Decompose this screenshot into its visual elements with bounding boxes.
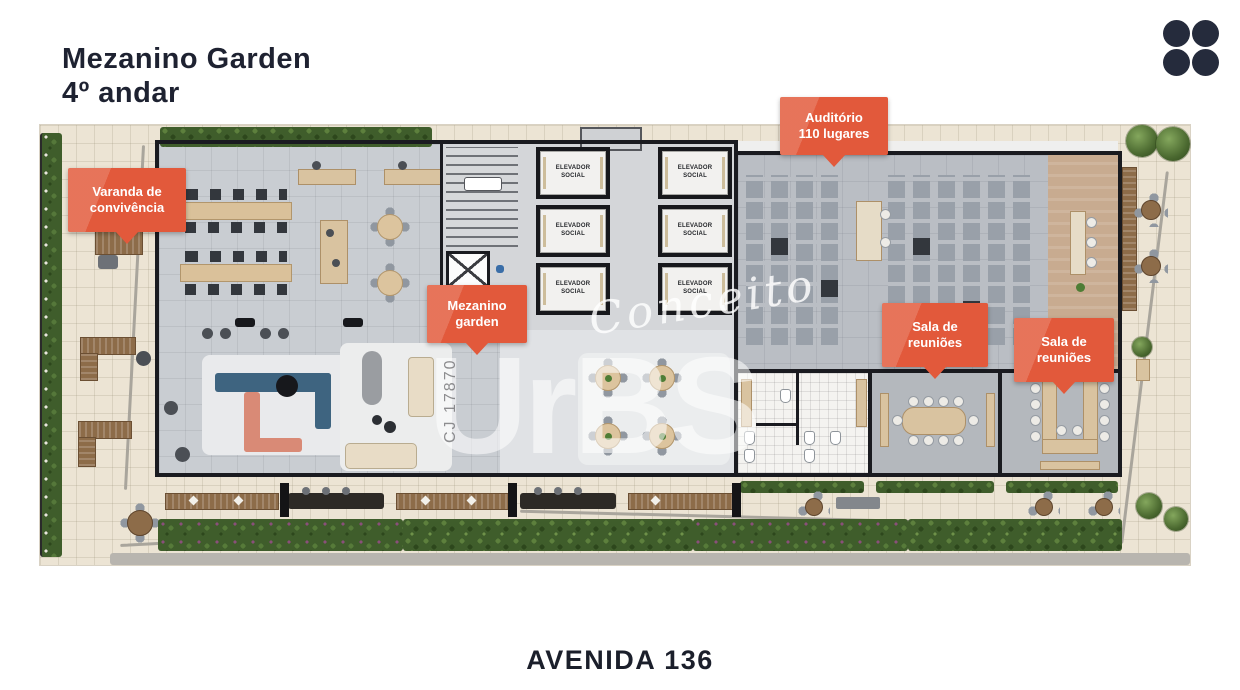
deck-seat [342,487,350,495]
terrace-round-table [1134,249,1168,283]
wall [1118,151,1122,477]
meeting-chair [953,396,964,407]
dark-deck [520,493,616,509]
callout-text: Sala de [1020,334,1108,350]
elevator: ELEVADORSOCIAL [658,205,732,257]
toilet [804,431,815,445]
cafe-chair [220,328,231,339]
workstation-bench [180,189,292,233]
control-chair [880,209,891,220]
callout-mezanino: Mezanino garden [427,285,527,343]
street-label: AVENIDA 136 [0,645,1240,676]
tree [1136,493,1162,519]
meeting-chair [953,435,964,446]
auditorium-seats-left [746,175,838,345]
side-table [384,421,396,433]
tree [1164,507,1188,531]
toilet [830,431,841,445]
garden-bench [165,493,279,510]
callout-text: Varanda de [74,184,180,200]
callout-text: Sala de [888,319,982,335]
desk-surface [180,264,292,282]
counter-item [332,259,340,267]
pouf [164,401,178,415]
toilet [804,449,815,463]
garden-bench [396,493,510,510]
callout-auditorio: Auditório 110 lugares [780,97,888,155]
workstation-bench [180,251,292,295]
deck-seat [574,487,582,495]
planter-hedge [876,481,994,493]
elevator-label: ELEVADOR [678,223,713,231]
logo-dot-icon [1163,49,1190,76]
sideboard [880,393,889,447]
pergola-post [280,483,289,517]
wall [868,373,872,473]
desk-chair [312,161,321,170]
deck-seat [322,487,330,495]
meeting-chair [1099,383,1110,394]
podium-chair [1086,237,1097,248]
tree [1126,125,1158,157]
watermark-license: CJ 17870 [442,359,460,444]
four-dots-logo [1163,20,1221,76]
meeting-chair [1030,399,1041,410]
small-desk [298,169,356,185]
u-table-bottom [1042,439,1098,454]
service-shaft [446,251,490,289]
meeting-table [902,407,966,435]
left-garden-strip [40,133,62,557]
chairs-row [185,284,287,295]
elevator-label: ELEVADOR [556,223,591,231]
watermark-brand: UrBS [428,337,757,475]
podium-chair [1086,257,1097,268]
callout-text: convivência [74,200,180,216]
dark-deck [288,493,384,509]
elevator: ELEVADORSOCIAL [536,205,610,257]
pouf [175,447,190,462]
terrace-side-table [98,255,118,269]
wall [155,140,738,144]
small-desk [384,169,442,185]
pergola-post [508,483,517,517]
meeting-chair [1099,415,1110,426]
garden-hedge [908,519,1122,551]
garden-hedge [693,519,908,551]
seat-dark [913,238,930,255]
callout-text: Auditório [786,110,882,126]
callout-text: garden [433,314,521,330]
meeting-chair [1030,415,1041,426]
callout-text: reuniões [1020,350,1108,366]
terrace-round-table [120,503,160,543]
pouf [136,351,151,366]
elevator-label: SOCIAL [561,173,585,181]
elevator: ELEVADORSOCIAL [536,147,610,199]
terrace-bench [78,437,96,467]
callout-text: Mezanino [433,298,521,314]
lounge-chair [372,415,382,425]
rooftop-hedge [160,127,432,147]
salmon-sofa-arm [244,438,302,452]
meeting-chair [938,396,949,407]
floorplan: ELEVADORSOCIAL ELEVADORSOCIAL ELEVADORSO… [40,125,1190,565]
tree [1156,127,1190,161]
wall-console [343,318,363,327]
toilet [780,389,791,403]
meeting-chair [1099,431,1110,442]
stair-landing [464,177,502,191]
wall-console [235,318,255,327]
desk-chair [398,161,407,170]
page-title-line2: 4º andar [62,76,311,110]
garden-hedge [158,519,403,551]
stage-podium-table [1070,211,1086,275]
planter-box [1136,359,1150,381]
meeting-chair [892,415,903,426]
small-tree [1132,337,1152,357]
meeting-chair [908,435,919,446]
pergola-post [732,483,741,517]
podium-chair [1086,217,1097,228]
storage-counter [320,220,348,284]
control-desk [856,201,882,261]
elevator-label: ELEVADOR [556,281,591,289]
meeting-chair [1099,399,1110,410]
patio-bench [836,497,880,509]
sideboard [986,393,995,447]
cafe-chair [278,328,289,339]
elevator-label: SOCIAL [683,231,707,239]
control-chair [880,237,891,248]
counter-item [326,229,334,237]
meeting-chair [908,396,919,407]
meeting-chair [1030,383,1041,394]
stairwell [446,147,518,247]
elevator-label: SOCIAL [561,289,585,297]
chairs-row [185,189,287,200]
callout-sala-reunioes-2: Sala de reuniões [1014,318,1114,382]
meeting-chair [938,435,949,446]
garden-bench [628,493,734,510]
deck-seat [534,487,542,495]
deck-strip [1122,167,1137,311]
sidewalk [110,553,1190,565]
deck-seat [302,487,310,495]
chairs-row [185,251,287,262]
elevator-label: ELEVADOR [556,165,591,173]
cafe-chair [260,328,271,339]
wall [998,373,1002,473]
chaise-lounge [362,351,382,405]
terrace-round-table [1134,193,1168,227]
logo-dot-icon [1192,49,1219,76]
blue-marker [496,265,504,273]
meeting-chair [923,396,934,407]
stage-plant [1076,283,1085,292]
page-title-line1: Mezanino Garden [62,42,311,76]
coffee-table [276,375,298,397]
seat-dark [821,280,838,297]
elevator-label: ELEVADOR [678,165,713,173]
logo-dot-icon [1192,20,1219,47]
meeting-chair [968,415,979,426]
elevator-label: SOCIAL [683,173,707,181]
chairs-row [185,222,287,233]
restroom-wall [756,423,799,426]
meeting-chair [1072,425,1083,436]
restroom-counter [856,379,867,427]
meeting-chair [1030,431,1041,442]
deck-seat [554,487,562,495]
blue-sofa-arm [315,373,331,429]
restroom-wall [796,373,799,445]
desk-surface [180,202,292,220]
elevator-label: SOCIAL [561,231,585,239]
garden-hedge [403,519,693,551]
callout-sala-reunioes-1: Sala de reuniões [882,303,988,367]
terrace-bench [80,353,98,381]
cafe-chair [202,328,213,339]
office-round-table [370,207,410,247]
meeting-chair [1056,425,1067,436]
meeting-chair [923,435,934,446]
cream-sofa [345,443,417,469]
callout-text: reuniões [888,335,982,351]
callout-text: 110 lugares [786,126,882,142]
logo-dot-icon [1163,20,1190,47]
bench-seat [1040,461,1100,470]
page-title: Mezanino Garden 4º andar [62,42,311,110]
seat-dark [771,238,788,255]
blue-sofa [215,373,331,392]
callout-varanda: Varanda de convivência [68,168,186,232]
office-round-table [370,263,410,303]
elevator: ELEVADORSOCIAL [658,147,732,199]
